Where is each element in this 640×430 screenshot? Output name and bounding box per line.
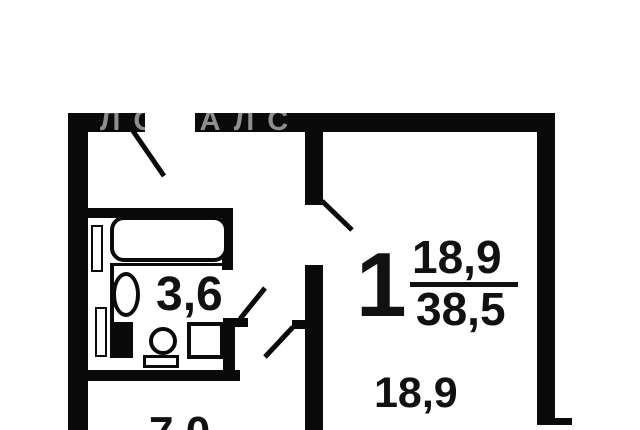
livingroom-door-swing xyxy=(322,201,352,230)
living-area-label: 18,9 xyxy=(412,234,502,280)
floor-plan: 3,6 1 18,9 38,5 18,9 7,0 ЛОКАЛС xyxy=(0,0,640,430)
total-area-label: 38,5 xyxy=(416,286,506,332)
door-swings xyxy=(0,0,640,430)
bathroom-door-swing xyxy=(240,288,265,319)
kitchen-door-swing xyxy=(265,327,293,357)
bathroom-area-label: 3,6 xyxy=(156,271,223,319)
rooms-count-label: 1 xyxy=(356,240,407,331)
entrance-door-swing xyxy=(133,131,164,176)
kitchen-area-label: 7,0 xyxy=(149,411,210,430)
watermark-text: ЛОКАЛС xyxy=(100,107,301,136)
room-area-label: 18,9 xyxy=(374,372,458,415)
